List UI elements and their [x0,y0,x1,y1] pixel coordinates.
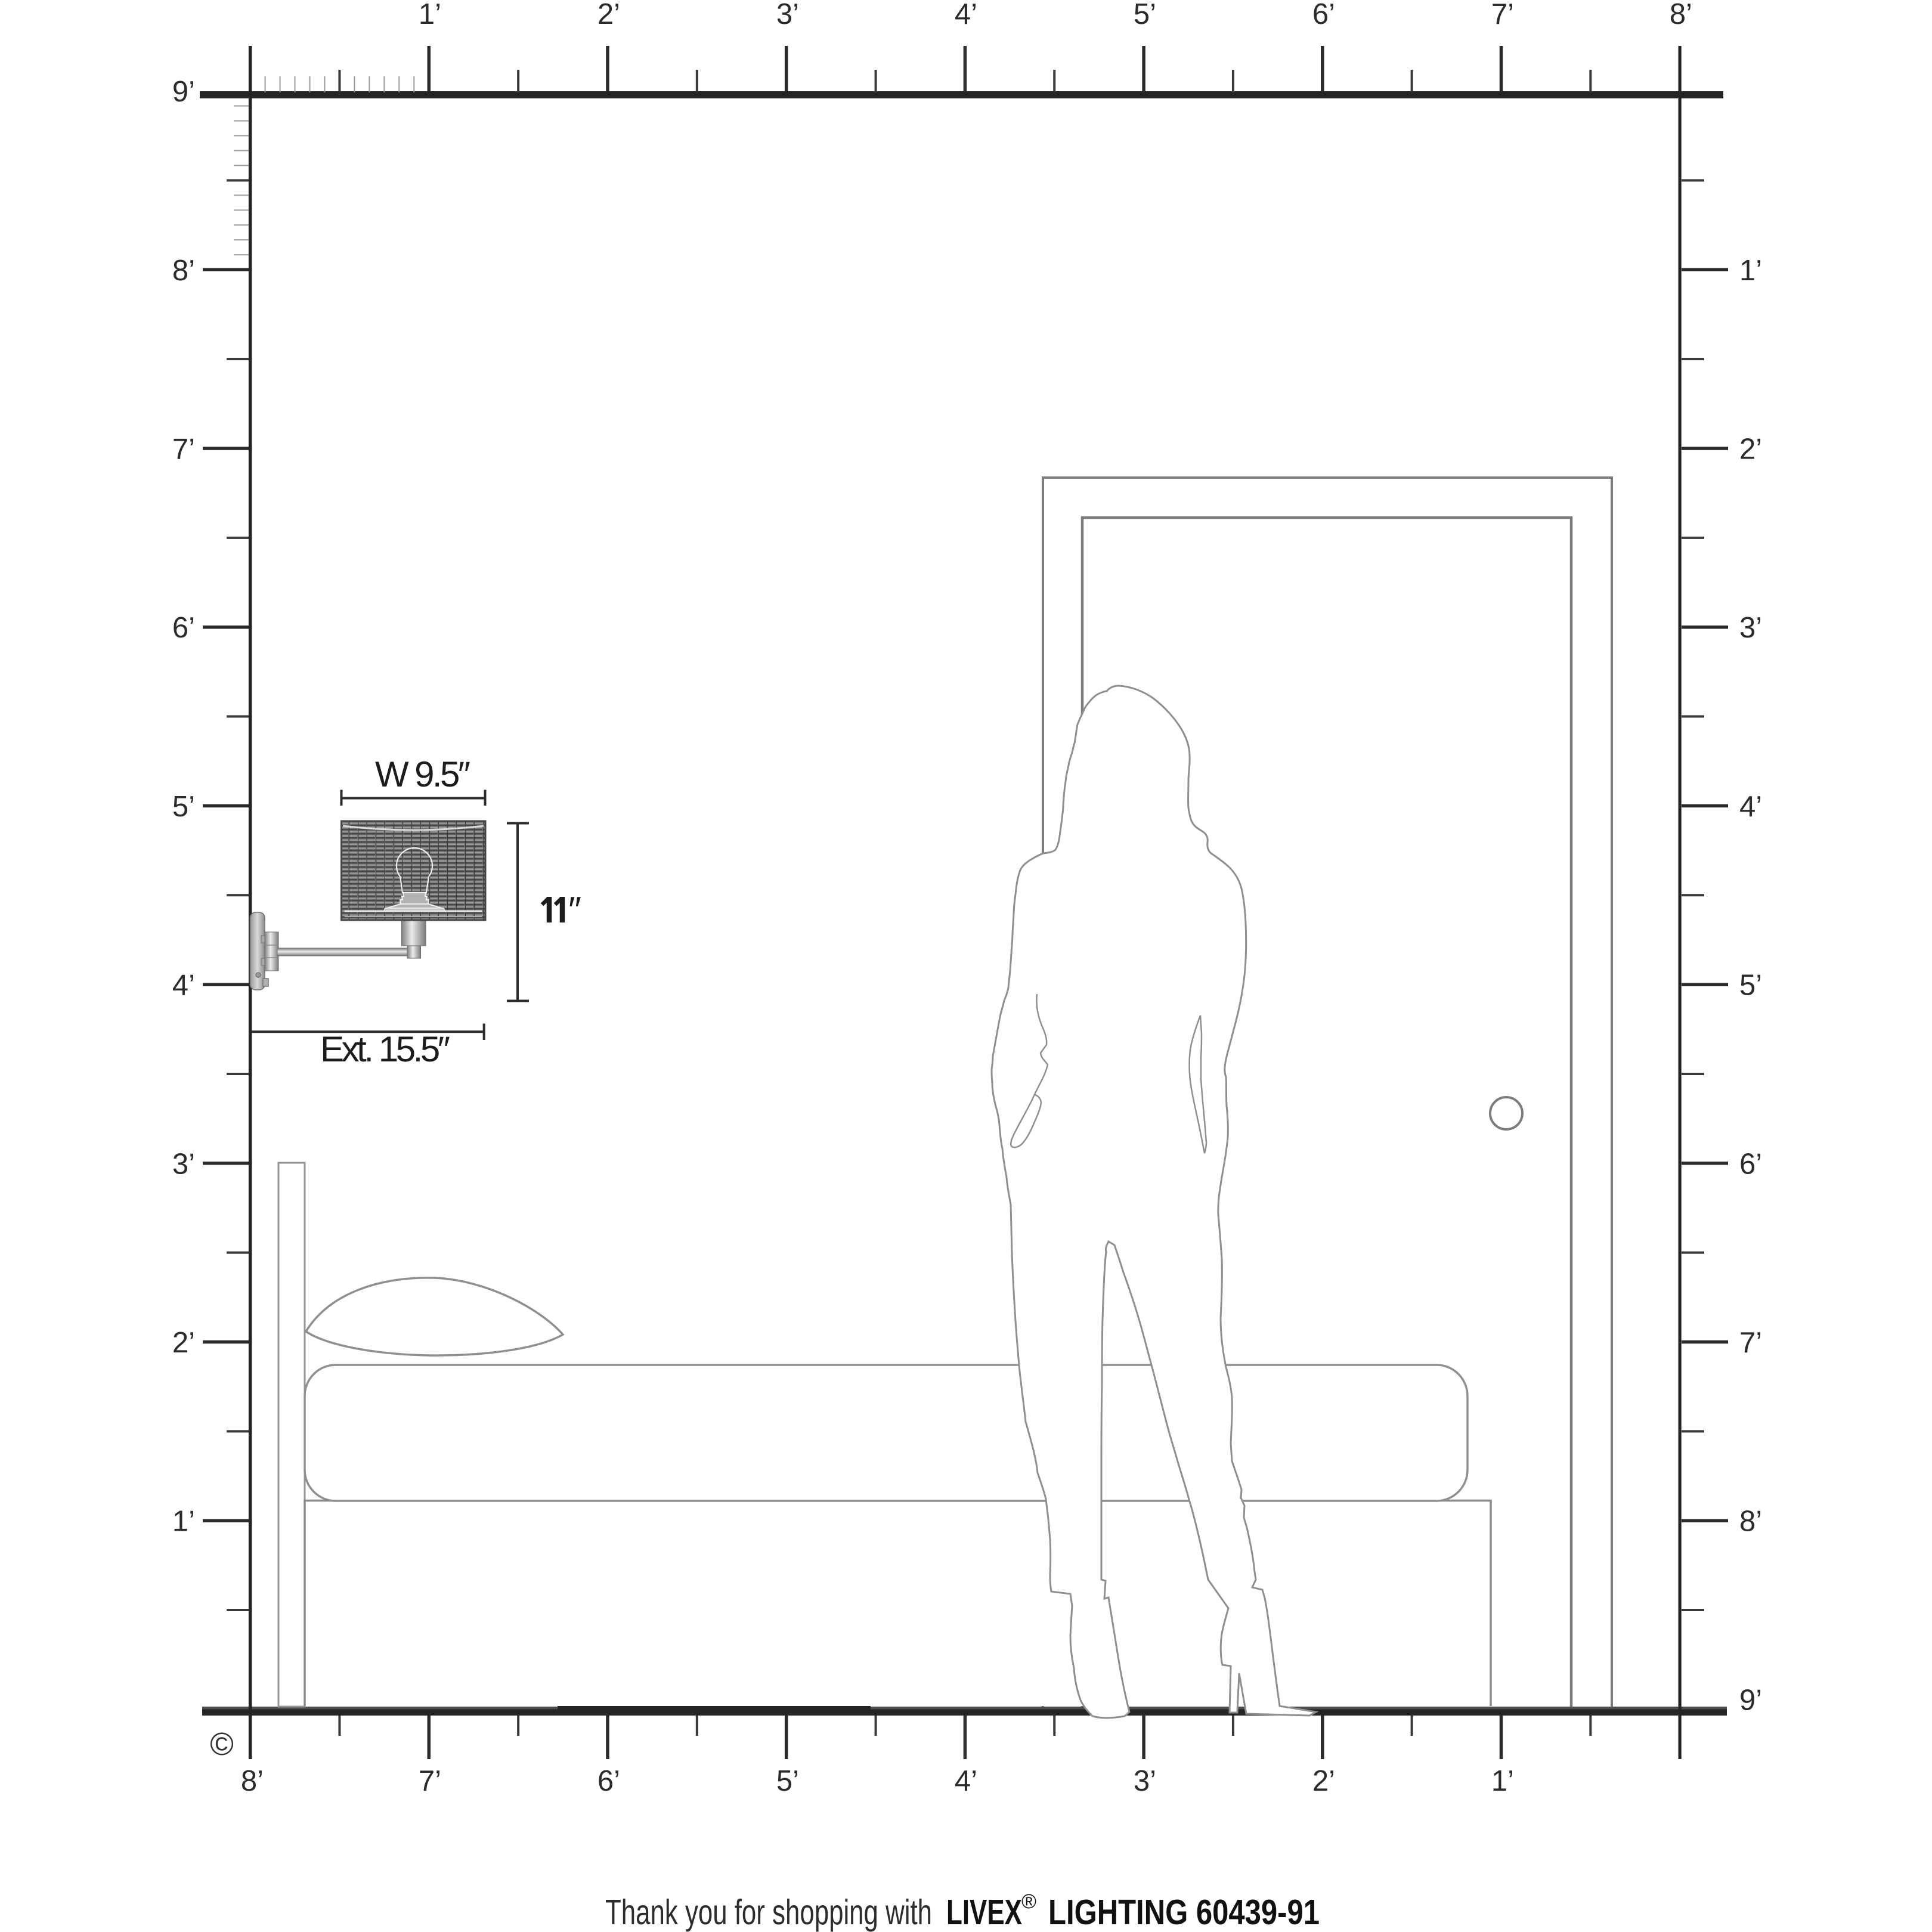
svg-text:8’: 8’ [1670,0,1692,30]
svg-text:®: ® [1021,1890,1036,1913]
svg-text:©: © [210,1726,234,1762]
svg-text:3’: 3’ [776,0,799,30]
svg-text:4’: 4’ [955,1765,977,1797]
svg-text:3’: 3’ [172,1148,195,1180]
svg-text:LIVEX: LIVEX [946,1893,1022,1932]
svg-text:2’: 2’ [597,0,620,30]
svg-text:1’: 1’ [172,1506,195,1538]
svg-text:2’: 2’ [1312,1765,1335,1797]
svg-text:6’: 6’ [172,612,195,644]
svg-text:5’: 5’ [1134,0,1156,30]
svg-text:9’: 9’ [1739,1684,1762,1716]
svg-text:LIGHTING 60439-91: LIGHTING 60439-91 [1048,1893,1320,1932]
svg-text:3’: 3’ [1134,1765,1156,1797]
svg-text:7’: 7’ [1491,0,1514,30]
svg-text:Ext. 15.5″: Ext. 15.5″ [320,1029,450,1069]
svg-text:6’: 6’ [1312,0,1335,30]
svg-text:5’: 5’ [1739,970,1762,1002]
svg-text:1’: 1’ [1491,1765,1514,1797]
svg-text:7’: 7’ [172,434,195,466]
svg-text:4’: 4’ [1739,791,1762,823]
svg-text:7’: 7’ [419,1765,441,1797]
svg-text:6’: 6’ [1739,1148,1762,1180]
svg-text:W 9.5″: W 9.5″ [375,754,470,794]
svg-text:6’: 6’ [597,1765,620,1797]
svg-text:2’: 2’ [172,1327,195,1359]
svg-text:3’: 3’ [1739,612,1762,644]
svg-text:9’: 9’ [172,76,195,108]
svg-text:1’: 1’ [419,0,441,30]
svg-text:1’: 1’ [1739,255,1762,287]
svg-text:7’: 7’ [1739,1327,1762,1359]
svg-text:2’: 2’ [1739,434,1762,466]
svg-text:8’: 8’ [241,1765,264,1797]
svg-text:4’: 4’ [172,970,195,1002]
svg-text:5’: 5’ [776,1765,799,1797]
svg-text:4’: 4’ [955,0,977,30]
svg-text:5’: 5’ [172,791,195,823]
svg-text:″: ″ [568,890,581,931]
svg-text:8’: 8’ [1739,1506,1762,1538]
svg-text:Thank you for shopping with: Thank you for shopping with [605,1893,932,1932]
svg-text:8’: 8’ [172,255,195,287]
